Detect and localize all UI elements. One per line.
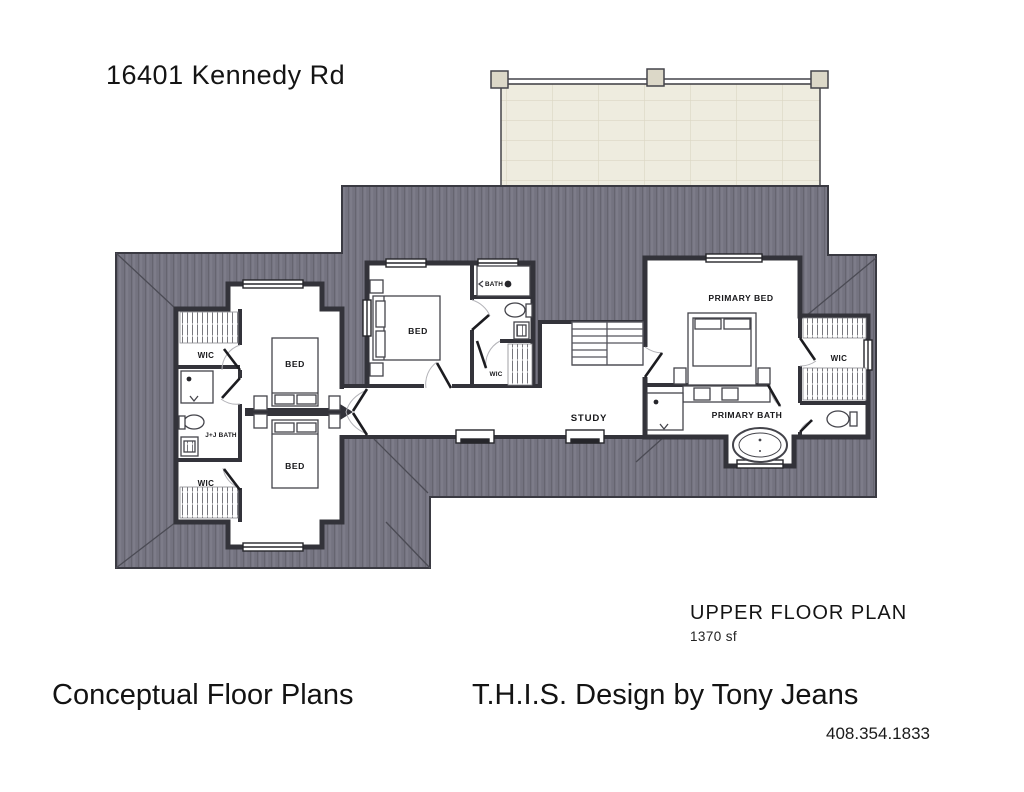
room-label-bath-middle: BATH <box>485 281 503 288</box>
designer-credit: T.H.I.S. Design by Tony Jeans <box>472 679 858 712</box>
deck-tiles <box>501 84 820 186</box>
roof-deck <box>491 69 828 186</box>
plan-area: 1370 sf <box>690 629 907 644</box>
room-label-jj-bath: J+J BATH <box>205 432 237 439</box>
room-label-primary-bed: PRIMARY BED <box>708 293 773 303</box>
window <box>243 543 303 551</box>
page: 16401 Kennedy Rd <box>0 0 1024 792</box>
stairs <box>572 322 643 365</box>
floor-plan-drawing: WIC J+J BATH WIC BED BED BED BATH WIC ST… <box>0 0 1024 792</box>
room-label-bed-left-top: BED <box>285 359 305 369</box>
room-label-primary-bath: PRIMARY BATH <box>712 410 783 420</box>
room-label-wic-left-top: WIC <box>198 351 215 360</box>
room-label-study: STUDY <box>571 413 608 424</box>
phone-number: 408.354.1833 <box>690 724 930 744</box>
bed-furniture <box>674 313 770 385</box>
room-label-bed-middle: BED <box>408 326 428 336</box>
plan-caption: UPPER FLOOR PLAN 1370 sf <box>690 602 907 644</box>
window-bay <box>456 430 494 443</box>
window <box>706 254 762 262</box>
window <box>363 300 371 336</box>
window <box>243 280 303 288</box>
plan-name: UPPER FLOOR PLAN <box>690 602 907 625</box>
window <box>864 340 872 370</box>
room-label-wic-left-bottom: WIC <box>198 479 215 488</box>
window <box>386 259 426 267</box>
room-label-bed-left-bottom: BED <box>285 461 305 471</box>
room-label-wic-middle: WIC <box>489 371 502 378</box>
room-label-wic-right: WIC <box>831 354 848 363</box>
footer-title: Conceptual Floor Plans <box>52 679 353 712</box>
window-bay <box>566 430 604 443</box>
